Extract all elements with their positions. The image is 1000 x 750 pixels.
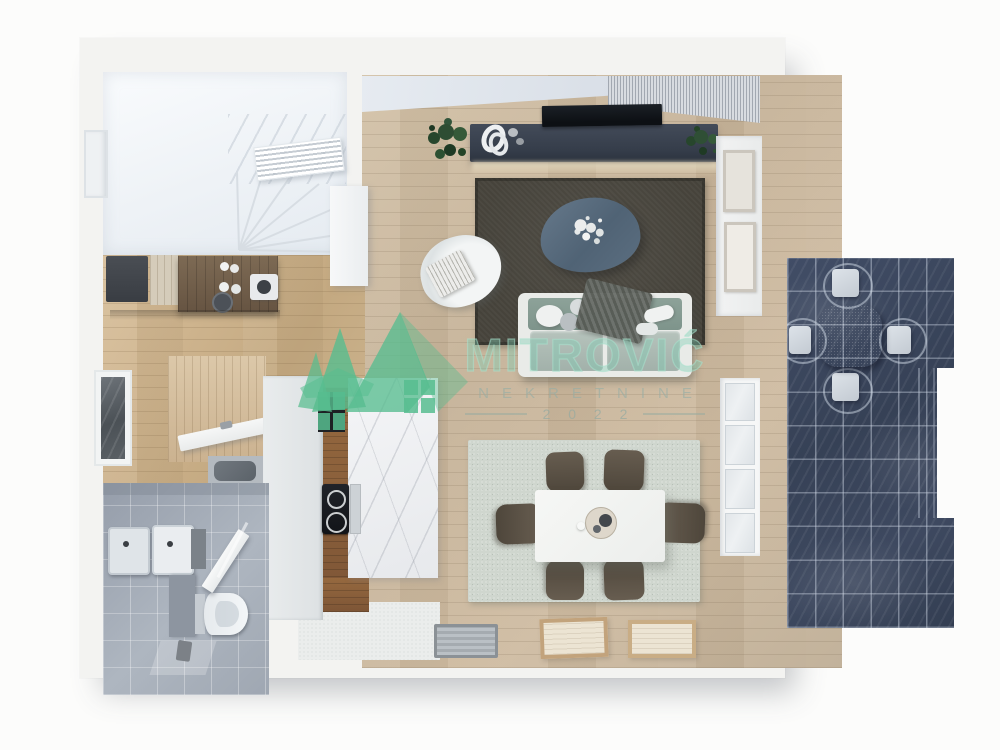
apartment-shell: [80, 38, 785, 678]
dining-chair: [658, 502, 705, 544]
stair-window: [84, 130, 108, 198]
outdoor-chair: [887, 326, 911, 354]
kitchen-window: [96, 372, 130, 464]
console-light-glow: [472, 162, 718, 175]
cooktop: [322, 484, 349, 534]
bathroom-sink: [108, 527, 150, 575]
sofa-pillow: [536, 305, 563, 327]
floorplan-render: MITROVIĆ NEKRETNINE 2 0 2 2: [0, 0, 1000, 750]
wall-cabinet: [716, 136, 762, 316]
bathroom-sink: [152, 525, 194, 575]
island-marble-top: [348, 378, 438, 578]
sofa: [518, 293, 692, 377]
floor-light-patch: [149, 641, 216, 675]
dining-chair: [603, 449, 644, 492]
window-right-wall: [720, 378, 760, 556]
bath-cabinet: [191, 529, 206, 569]
step-seam: [933, 368, 935, 518]
faucet: [220, 420, 233, 429]
fridge-top: [106, 256, 148, 302]
jar: [220, 262, 229, 271]
closet-block: [330, 186, 368, 286]
half-wall: [169, 575, 195, 637]
dining-table: [535, 490, 665, 562]
tv-screen: [542, 104, 662, 127]
dining-chair: [546, 560, 584, 600]
sofa-pillow: [636, 323, 658, 335]
plant-left: [424, 110, 476, 168]
cup: [577, 522, 585, 530]
outdoor-table: [818, 305, 882, 367]
shower-glass: [217, 522, 249, 578]
island-wood-corner: [323, 578, 369, 612]
picture-frame: [723, 150, 755, 212]
kitchen-counter: [104, 254, 289, 318]
picture-frame: [724, 222, 756, 292]
terrace: [787, 258, 954, 628]
bathroom: [103, 483, 269, 695]
doormat: [434, 624, 498, 658]
island-niche: [318, 392, 345, 432]
dining-chair: [545, 451, 584, 492]
island-cabinets: [263, 376, 323, 620]
decor-stone: [508, 128, 518, 137]
leaning-frame: [539, 617, 608, 659]
toilet: [195, 593, 247, 635]
decor-stone: [516, 138, 524, 145]
bathroom-wall-band: [103, 483, 269, 495]
cooktop-side-tray: [350, 484, 361, 534]
dining-chair: [603, 557, 644, 600]
jar: [219, 282, 229, 292]
flower-bouquet: [574, 218, 588, 232]
staircase-room: [103, 72, 347, 255]
cabinet-top: [150, 255, 178, 305]
vanity-basin: [208, 456, 266, 486]
outdoor-chair: [832, 269, 859, 297]
decor-sculpture: [480, 122, 506, 154]
counter-shadow: [110, 310, 280, 320]
leaning-frame: [628, 620, 696, 658]
dining-chair: [495, 503, 540, 545]
outdoor-chair: [789, 326, 811, 354]
step-seam: [918, 368, 920, 518]
outdoor-chair: [832, 373, 859, 401]
